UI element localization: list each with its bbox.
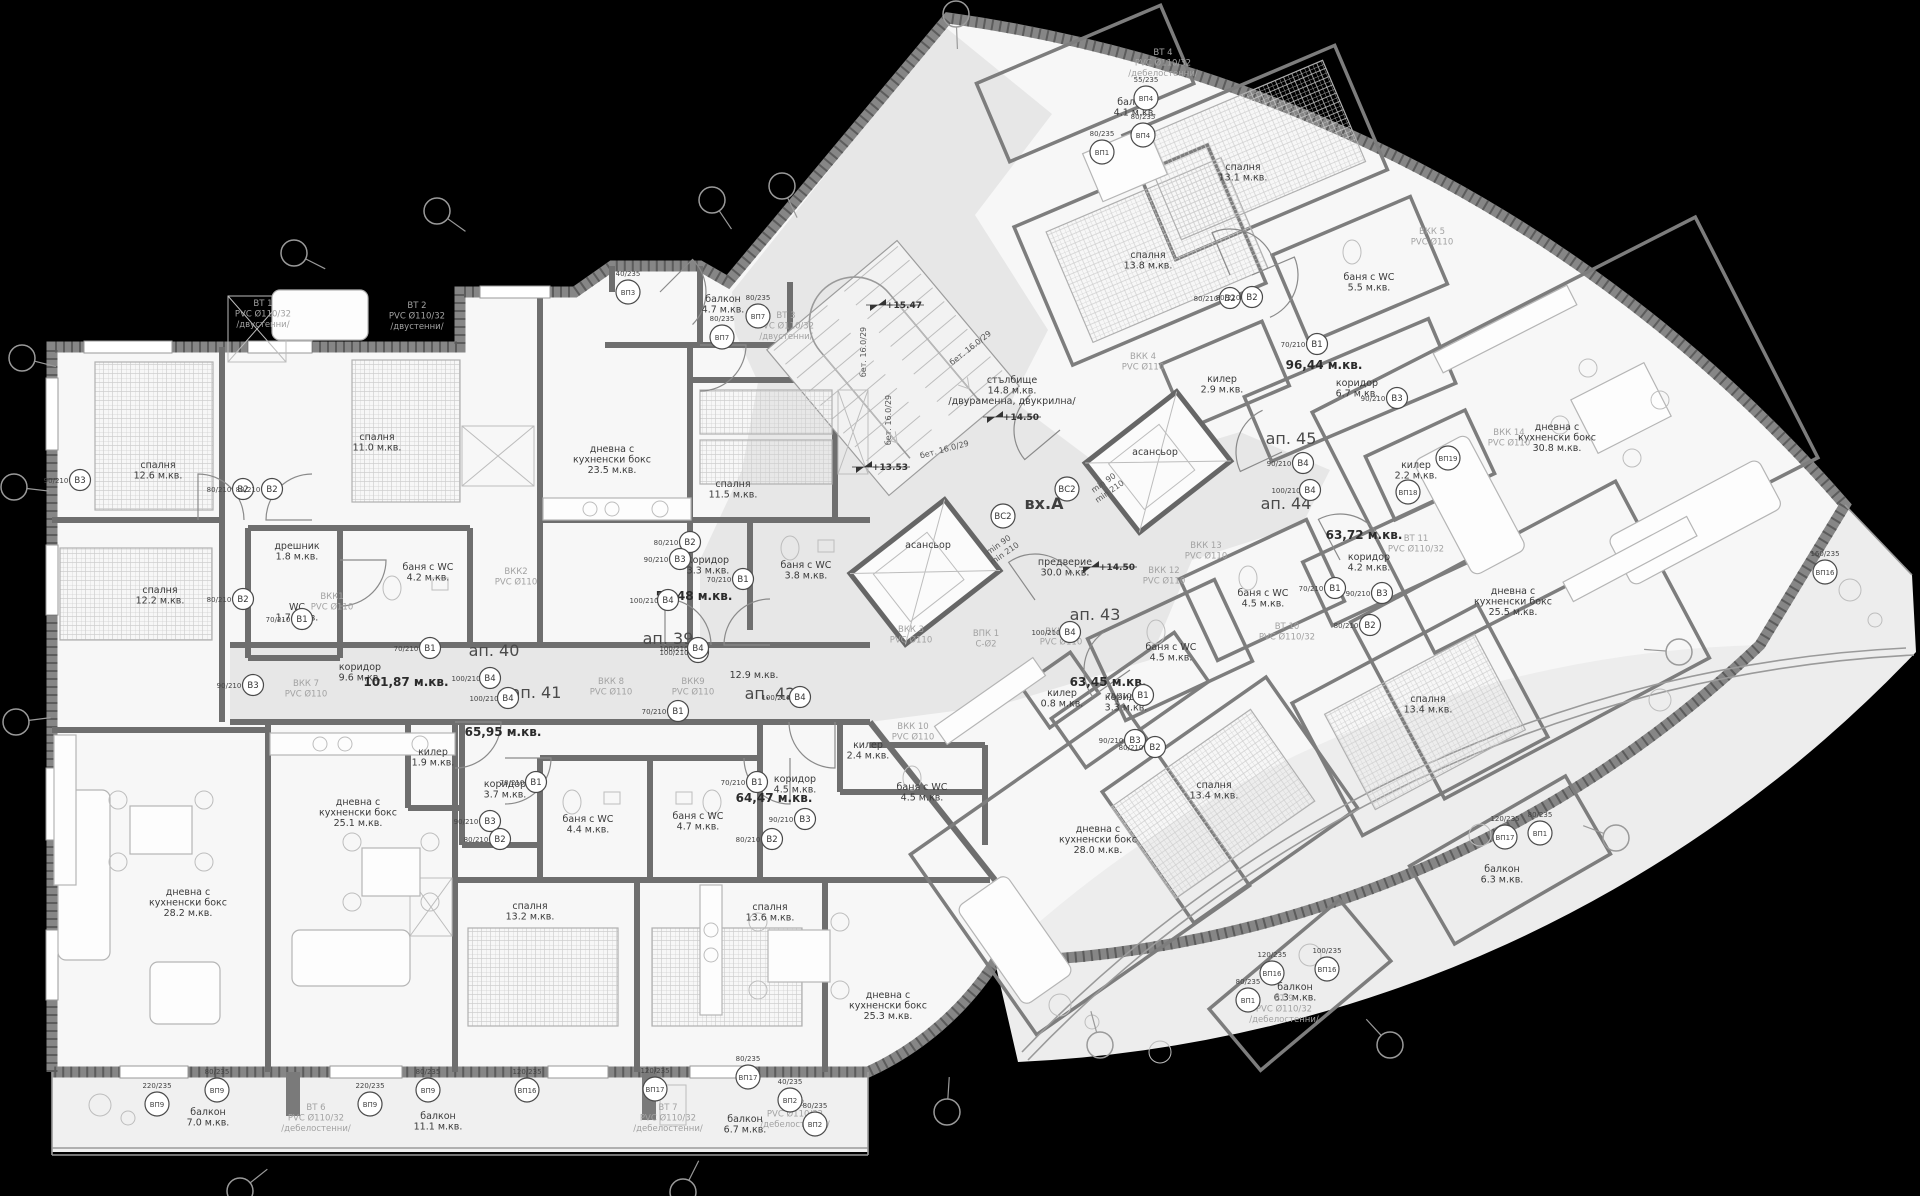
- room-label: балкон6.3 м.кв.: [1481, 864, 1524, 886]
- note-label: бет. 16.0/29: [859, 327, 868, 377]
- window-tag: ВП4: [1139, 95, 1154, 103]
- door-tag: В2: [1149, 743, 1160, 753]
- window-dim: 55/235: [1134, 76, 1159, 84]
- door-dim: 90/210: [1346, 590, 1371, 598]
- door-dim: 80/210: [464, 836, 489, 844]
- window-tag: ВП16: [1263, 970, 1283, 978]
- door-dim: 100/210: [469, 695, 498, 703]
- door-tag: В4: [794, 693, 805, 703]
- window-dim: 80/235: [205, 1068, 230, 1076]
- door-tag: В2: [237, 595, 248, 605]
- door-dim: 100/210: [761, 694, 790, 702]
- window-tag: ВП2: [808, 1121, 823, 1129]
- room-label: балкон7.0 м.кв.: [187, 1107, 230, 1129]
- apartment-label: ап. 43: [1070, 605, 1121, 624]
- window-dim: 80/235: [736, 1055, 761, 1063]
- door-tag: В3: [799, 815, 810, 825]
- room-label: килер0.8 м.кв.: [1041, 688, 1084, 710]
- room-label: асансьор: [1132, 447, 1178, 458]
- apartment-label: ап. 40: [469, 641, 520, 660]
- room-label: спалня13.2 м.кв.: [506, 901, 555, 923]
- area-label: 64,47 м.кв.: [736, 791, 813, 805]
- door-tag: В3: [74, 476, 85, 486]
- window-dim: 120/235: [1257, 951, 1286, 959]
- door-tag: В4: [502, 694, 513, 704]
- door-tag: В3: [674, 555, 685, 565]
- window-tag: ВП9: [150, 1101, 165, 1109]
- door-dim: 80/210: [736, 836, 761, 844]
- window-tag: ВП17: [646, 1086, 665, 1094]
- door-tag: В3: [247, 681, 258, 691]
- door-tag: В2: [684, 538, 695, 548]
- door-dim: 80/210: [207, 486, 232, 494]
- window-tag: ВП7: [751, 313, 766, 321]
- door-tag: В1: [1137, 691, 1148, 701]
- window-dim: 80/235: [803, 1102, 828, 1110]
- door-dim: 90/210: [769, 816, 794, 824]
- window-dim: 100/235: [1312, 947, 1341, 955]
- door-tag: В1: [1329, 584, 1340, 594]
- door-dim: 90/210: [454, 818, 479, 826]
- door-dim: 70/210: [721, 779, 746, 787]
- riser-label: ВКК 14PVC Ø110: [1488, 428, 1531, 449]
- door-tag: В3: [1376, 589, 1387, 599]
- window-dim: 120/235: [1490, 815, 1519, 823]
- door-tag: В1: [1311, 340, 1322, 350]
- floor-plan-svg: спалня12.6 м.кв.спалня11.0 м.кв.спалня12…: [0, 0, 1920, 1196]
- vs-tag: ВС2: [1058, 485, 1075, 495]
- room-label: спалня11.5 м.кв.: [709, 479, 758, 501]
- window-dim: 160/235: [1810, 550, 1839, 558]
- area-label: 101,87 м.кв.: [363, 675, 448, 689]
- door-dim: 90/210: [217, 682, 242, 690]
- window-tag: ВП9: [363, 1101, 378, 1109]
- door-tag: В4: [1297, 459, 1308, 469]
- level-label: +14.50: [1003, 413, 1039, 423]
- window-tag: ВП16: [518, 1087, 538, 1095]
- door-tag: В1: [672, 707, 683, 717]
- room-label: спалня13.4 м.кв.: [1404, 694, 1453, 716]
- door-dim: 80/210: [1216, 294, 1241, 302]
- riser-label: ВПК 1С-Ø2: [973, 629, 999, 650]
- room-label: баня с WC4.4 м.кв.: [563, 814, 614, 836]
- door-tag: В3: [484, 817, 495, 827]
- window-dim: 40/235: [616, 270, 641, 278]
- door-tag: В2: [266, 485, 277, 495]
- room-label: баня с WC3.8 м.кв.: [781, 560, 832, 582]
- room-label: спалня13.4 м.кв.: [1190, 780, 1239, 802]
- window-dim: 80/235: [710, 315, 735, 323]
- room-label: килер2.2 м.кв.: [1395, 460, 1438, 482]
- door-dim: 70/210: [1281, 341, 1306, 349]
- door-tag: В1: [737, 575, 748, 585]
- room-label: асансьор: [905, 540, 951, 551]
- window-tag: ВП2: [783, 1097, 798, 1105]
- room-label: килер2.4 м.кв.: [847, 740, 890, 762]
- window-tag: ВП7: [715, 334, 730, 342]
- window-tag: ВП18: [1399, 489, 1418, 497]
- door-dim: 70/210: [500, 779, 525, 787]
- door-tag: В4: [1064, 628, 1075, 638]
- window-tag: ВП17: [1496, 834, 1515, 842]
- window-dim: 120/235: [640, 1067, 669, 1075]
- level-label: +15.47: [886, 301, 922, 311]
- room-label: килер1.9 м.кв.: [412, 747, 455, 769]
- note-label: бет. 16.0/29: [884, 395, 893, 445]
- room-label: баня с WC4.5 м.кв.: [1238, 588, 1289, 610]
- level-label: +14.50: [1099, 563, 1135, 573]
- room-label: спалня11.0 м.кв.: [353, 432, 402, 454]
- room-label: баня с WC4.2 м.кв.: [403, 562, 454, 584]
- door-dim: 100/210: [1031, 629, 1060, 637]
- door-dim: 90/210: [44, 477, 69, 485]
- area-label: 63,72 м.кв.: [1326, 528, 1403, 542]
- door-tag: В2: [494, 835, 505, 845]
- window-tag: ВП1: [1533, 830, 1548, 838]
- floor-plan: спалня12.6 м.кв.спалня11.0 м.кв.спалня12…: [0, 0, 1920, 1196]
- window-dim: 40/235: [778, 1078, 803, 1086]
- door-dim: 100/210: [451, 675, 480, 683]
- door-dim: 80/210: [1194, 295, 1219, 303]
- window-dim: 220/235: [355, 1082, 384, 1090]
- door-dim: 90/210: [644, 556, 669, 564]
- window-dim: 80/235: [746, 294, 771, 302]
- window-dim: 80/235: [1131, 113, 1156, 121]
- room-label: баня с WC4.5 м.кв.: [1146, 642, 1197, 664]
- riser-label: ВКК 12PVC Ø110: [1143, 566, 1186, 587]
- door-tag: В1: [296, 615, 307, 625]
- room-label: спалня12.6 м.кв.: [134, 460, 183, 482]
- door-dim: 70/210: [1107, 692, 1132, 700]
- window-dim: 80/235: [416, 1068, 441, 1076]
- room-label: спалня13.6 м.кв.: [746, 902, 795, 924]
- room-label: баня с WC4.7 м.кв.: [673, 811, 724, 833]
- window-tag: ВП4: [1136, 132, 1151, 140]
- door-tag: В2: [766, 835, 777, 845]
- door-dim: 80/210: [236, 486, 261, 494]
- level-label: +13.53: [872, 463, 908, 473]
- door-tag: В1: [751, 778, 762, 788]
- door-dim: 100/210: [1271, 487, 1300, 495]
- window-tag: ВП19: [1439, 455, 1458, 463]
- door-dim: 70/210: [266, 616, 291, 624]
- window-dim: 220/235: [142, 1082, 171, 1090]
- room-label: коридор3.3 м.кв.: [687, 555, 730, 577]
- room-label: коридор4.2 м.кв.: [1348, 552, 1391, 574]
- door-tag: В4: [662, 596, 673, 606]
- area-label: 63,45 м.кв.: [1070, 675, 1147, 689]
- window-tag: ВП9: [210, 1087, 225, 1095]
- door-dim: 80/210: [1119, 744, 1144, 752]
- apartment-label: ап. 45: [1266, 429, 1317, 448]
- room-label: спалня13.1 м.кв.: [1219, 162, 1268, 184]
- area-label: 96,44 м.кв.: [1286, 358, 1363, 372]
- area-label: 65,95 м.кв.: [465, 725, 542, 739]
- door-dim: 70/210: [394, 645, 419, 653]
- door-dim: 80/210: [207, 596, 232, 604]
- door-dim: 90/210: [1361, 395, 1386, 403]
- door-dim: 80/210: [654, 539, 679, 547]
- window-tag: ВП16: [1318, 966, 1338, 974]
- window-tag: ВП16: [1816, 569, 1836, 577]
- door-dim: 70/210: [1299, 585, 1324, 593]
- window-tag: ВП17: [739, 1074, 758, 1082]
- door-dim: 70/210: [642, 708, 667, 716]
- window-dim: 80/235: [1528, 811, 1553, 819]
- room-label: дрешник1.8 м.кв.: [274, 541, 320, 563]
- room-label: килер2.9 м.кв.: [1201, 374, 1244, 396]
- door-tag: В4: [1304, 486, 1315, 496]
- door-tag: В4: [692, 644, 703, 654]
- door-dim: 90/210: [1267, 460, 1292, 468]
- door-dim: 70/210: [707, 576, 732, 584]
- riser-label: ВКК 10PVC Ø110: [892, 722, 935, 743]
- door-tag: В3: [1391, 394, 1402, 404]
- room-label: балкон4.7 м.кв.: [702, 294, 745, 316]
- window-tag: ВП9: [421, 1087, 436, 1095]
- door-dim: 100/210: [659, 645, 688, 653]
- room-label: балкон11.1 м.кв.: [414, 1111, 463, 1133]
- window-dim: 80/235: [1236, 978, 1261, 986]
- vs-tag: ВС2: [994, 512, 1011, 522]
- room-label: баня с WC5.5 м.кв.: [1344, 272, 1395, 294]
- window-tag: ВП1: [1095, 149, 1110, 157]
- door-dim: 80/210: [1334, 622, 1359, 630]
- riser-label: ВКК 13PVC Ø110: [1185, 541, 1228, 562]
- window-dim: 80/235: [1090, 130, 1115, 138]
- room-label: спалня13.8 м.кв.: [1124, 250, 1173, 272]
- room-label: спалня12.2 м.кв.: [136, 585, 185, 607]
- window-dim: 120/235: [512, 1068, 541, 1076]
- door-tag: В1: [530, 778, 541, 788]
- door-dim: 100/210: [629, 597, 658, 605]
- room-label: баня с WC4.5 м.кв.: [897, 782, 948, 804]
- door-tag: В4: [484, 674, 495, 684]
- window-tag: ВП1: [1241, 997, 1256, 1005]
- door-tag: В2: [1246, 293, 1257, 303]
- room-label: 12.9 м.кв.: [730, 670, 779, 681]
- window-tag: ВП3: [621, 289, 636, 297]
- door-tag: В1: [424, 644, 435, 654]
- door-tag: В2: [1364, 621, 1375, 631]
